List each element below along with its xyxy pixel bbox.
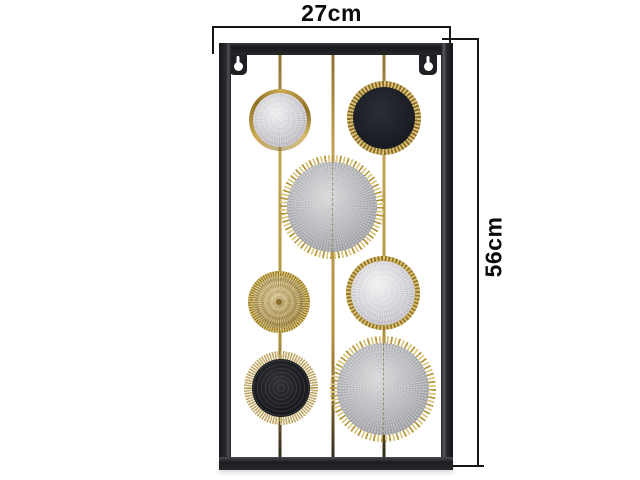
gold-pleated-center bbox=[253, 276, 305, 328]
height-dimension-label: 56cm bbox=[481, 217, 508, 278]
grey-mesh-upper-center bbox=[287, 162, 377, 252]
keyhole-icon bbox=[237, 56, 240, 66]
frame-top-bar bbox=[219, 43, 453, 55]
gold-pleated-medallion bbox=[248, 271, 310, 333]
width-dimension-tick-left bbox=[212, 26, 214, 54]
black-fringe-medallion bbox=[244, 351, 318, 425]
black-fringe-center bbox=[252, 359, 310, 417]
keyhole-hanger bbox=[419, 52, 437, 75]
grey-mesh-upper-medallion bbox=[280, 155, 384, 259]
pale-fluted-center bbox=[351, 261, 415, 325]
grey-mesh-lower-center bbox=[337, 343, 429, 435]
black-fluted-medallion bbox=[347, 81, 421, 155]
frame-bottom-bar bbox=[219, 457, 453, 470]
grey-mesh-lower-medallion bbox=[330, 336, 436, 442]
frame-left-bar bbox=[219, 43, 231, 470]
pale-fluted-medallion bbox=[346, 256, 420, 330]
width-dimension-line bbox=[212, 26, 451, 28]
height-dimension-line bbox=[477, 38, 479, 467]
keyhole-icon bbox=[427, 56, 430, 66]
height-dimension-tick-top bbox=[442, 38, 479, 40]
pale-doily-small-medallion bbox=[249, 89, 311, 151]
product-dimension-diagram: 27cm 56cm bbox=[0, 0, 640, 480]
frame-right-bar bbox=[441, 43, 453, 470]
width-dimension-label: 27cm bbox=[212, 0, 451, 27]
black-fluted-center bbox=[353, 87, 415, 149]
pale-doily-small-center bbox=[253, 93, 307, 147]
keyhole-hanger bbox=[229, 52, 247, 75]
